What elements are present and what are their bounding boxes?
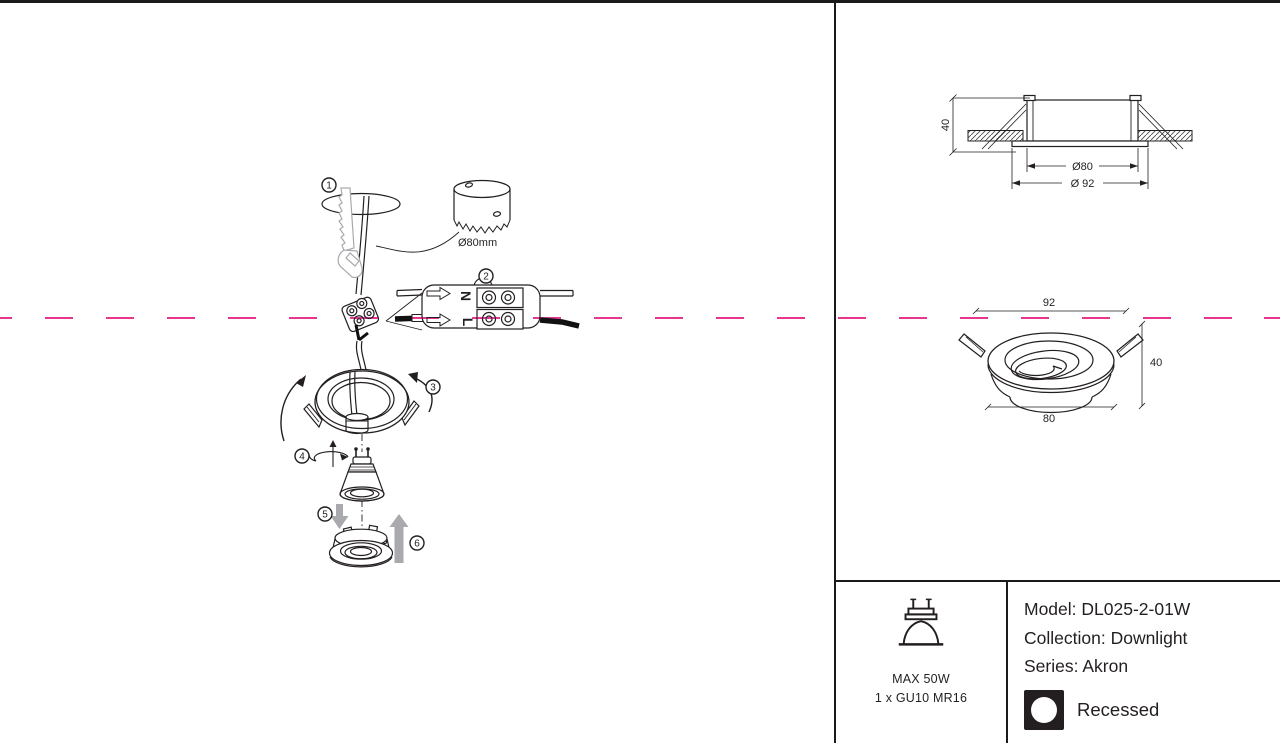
step4-number: 4 — [299, 452, 305, 463]
gu10-lamp-icon — [891, 596, 951, 656]
step2-terminal-block: N L 2 — [386, 269, 579, 330]
persp-clip-right — [1117, 334, 1143, 357]
dimensions-panel: 40 Ø80 Ø 92 9 — [834, 0, 1280, 743]
spec-box: MAX 50W 1 x GU10 MR16 Model: DL025-2-01W… — [836, 580, 1280, 743]
rotate-arrow-left — [281, 379, 301, 441]
mounting-label: Recessed — [1077, 699, 1159, 721]
push-down-arrow — [331, 504, 349, 529]
dim-bottom-80 — [985, 404, 1117, 410]
lamp-spec-cell: MAX 50W 1 x GU10 MR16 — [836, 582, 1008, 743]
step6-number: 6 — [414, 539, 420, 550]
dim-side-40 — [1139, 321, 1145, 409]
terminal-n-label: N — [458, 291, 474, 301]
collection-line: Collection: Downlight — [1024, 624, 1280, 653]
step3-number: 3 — [430, 383, 436, 394]
recessed-icon — [1024, 690, 1064, 730]
product-info-cell: Model: DL025-2-01W Collection: Downlight… — [1008, 582, 1280, 743]
dimension-drawings: 40 Ø80 Ø 92 9 — [836, 0, 1280, 580]
magenta-dashed-guide-line — [0, 317, 1280, 319]
step1-number: 1 — [326, 181, 332, 192]
persp-clip-left — [959, 334, 985, 357]
persp-top-label: 92 — [1043, 297, 1055, 309]
trim-ring — [330, 525, 393, 567]
neutral-wire-in — [397, 290, 422, 297]
step5-number: 5 — [322, 510, 328, 521]
ceiling-section-right — [1138, 131, 1192, 142]
max-power-label: MAX 50W — [875, 670, 967, 689]
neutral-wire-out — [540, 291, 573, 297]
series-line: Series: Akron — [1024, 652, 1280, 681]
section-height-label: 40 — [940, 119, 952, 131]
cross-section-view: 40 Ø80 Ø 92 — [940, 95, 1192, 191]
lamp-type-label: 1 x GU10 MR16 — [875, 689, 967, 708]
housing-section — [1027, 100, 1138, 141]
hole-saw-icon — [454, 181, 510, 234]
ceiling-hole — [322, 194, 400, 215]
persp-bowl — [1010, 397, 1092, 412]
twist-symbol — [309, 440, 348, 467]
persp-height-label: 40 — [1150, 357, 1162, 369]
model-line: Model: DL025-2-01W — [1024, 595, 1280, 624]
persp-bottom-label: 80 — [1043, 413, 1055, 425]
live-wire-out — [540, 320, 579, 326]
hole-saw-size-label: Ø80mm — [458, 237, 497, 249]
installation-steps-drawing: 1 Ø80mm N — [0, 3, 834, 743]
handsaw-icon — [338, 188, 362, 277]
mounting-ring-outer — [315, 371, 409, 433]
section-cutout-label: Ø80 — [1072, 161, 1093, 173]
step2-number: 2 — [483, 272, 489, 283]
trim-flange-section — [1012, 141, 1148, 147]
hole-saw-leader-line — [376, 232, 459, 252]
step5-6-trim-ring: 5 6 — [318, 504, 424, 567]
instruction-sheet: { "colors": { "ink": "#231f20", "gray": … — [0, 0, 1280, 743]
step3-housing: 3 — [281, 370, 440, 442]
section-outer-label: Ø 92 — [1071, 178, 1095, 190]
mounting-row: Recessed — [1024, 690, 1280, 730]
installation-diagram-panel: 1 Ø80mm N — [0, 3, 834, 743]
